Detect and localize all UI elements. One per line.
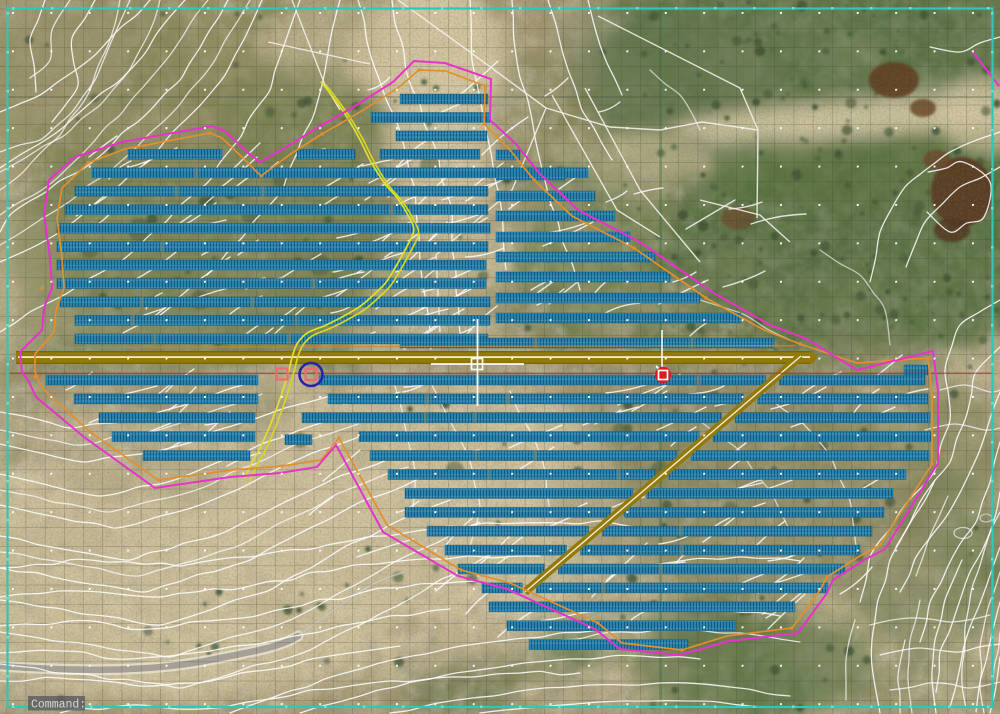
svg-text:Command:: Command: <box>31 699 86 712</box>
